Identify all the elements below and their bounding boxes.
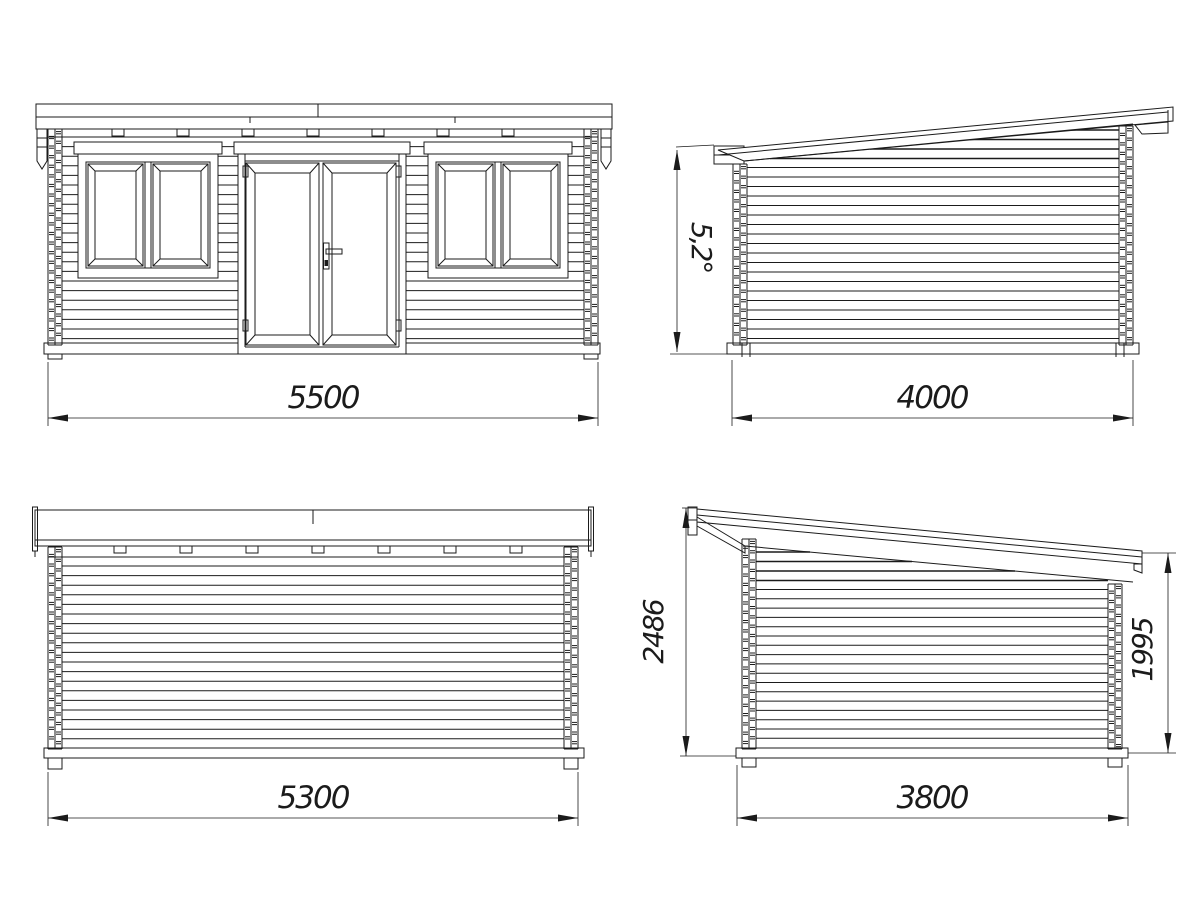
dimension-roof-angle: 5,2° bbox=[670, 145, 727, 354]
base-beam bbox=[727, 343, 1139, 357]
base-beam bbox=[44, 748, 584, 769]
wall-siding bbox=[62, 566, 564, 739]
pent-roof bbox=[714, 107, 1173, 164]
side-elevation-left-view: 2486 1995 3800 bbox=[637, 507, 1176, 826]
wall-siding bbox=[756, 590, 1108, 739]
corner-logs-right bbox=[1119, 126, 1133, 345]
double-door bbox=[234, 142, 410, 354]
roof-brackets bbox=[112, 129, 514, 136]
window-left bbox=[74, 142, 222, 278]
dim-label-back-width: 5300 bbox=[278, 780, 350, 816]
dim-label-depth-3800: 3800 bbox=[897, 780, 969, 816]
dim-label-depth-4000: 4000 bbox=[897, 380, 969, 416]
dim-label-height-1995: 1995 bbox=[1126, 617, 1159, 681]
dimension-depth: 4000 bbox=[732, 360, 1133, 426]
corner-logs-left bbox=[48, 547, 62, 749]
corner-logs-right bbox=[1108, 584, 1122, 749]
back-elevation-view: 5300 bbox=[33, 507, 594, 826]
dim-label-roof-angle: 5,2° bbox=[685, 222, 718, 273]
dimension-depth: 3800 bbox=[737, 765, 1128, 826]
dimension-height-high: 2486 bbox=[637, 508, 736, 756]
dimension-back-width: 5300 bbox=[48, 772, 578, 826]
side-elevation-right-view: 5,2° 4000 bbox=[670, 107, 1173, 426]
base-beam bbox=[736, 748, 1128, 767]
corner-logs-right bbox=[584, 129, 598, 345]
corner-logs-left bbox=[48, 129, 62, 345]
roof-fascia bbox=[33, 507, 594, 557]
dimension-front-width: 5500 bbox=[48, 362, 598, 426]
dimension-height-low: 1995 bbox=[1126, 553, 1176, 753]
dim-label-height-2486: 2486 bbox=[637, 599, 670, 663]
corner-logs-left bbox=[733, 164, 747, 345]
window-right bbox=[424, 142, 572, 278]
front-elevation-view: 5500 bbox=[36, 104, 612, 426]
corner-logs-left bbox=[742, 539, 756, 749]
cabin-elevations-drawing: 5500 bbox=[0, 0, 1200, 900]
dim-label-front-width: 5500 bbox=[288, 380, 360, 416]
roof-brackets bbox=[114, 546, 522, 553]
corner-logs-right bbox=[564, 547, 578, 749]
wall-siding bbox=[747, 168, 1119, 339]
technical-drawing-canvas: 5500 bbox=[0, 0, 1200, 900]
